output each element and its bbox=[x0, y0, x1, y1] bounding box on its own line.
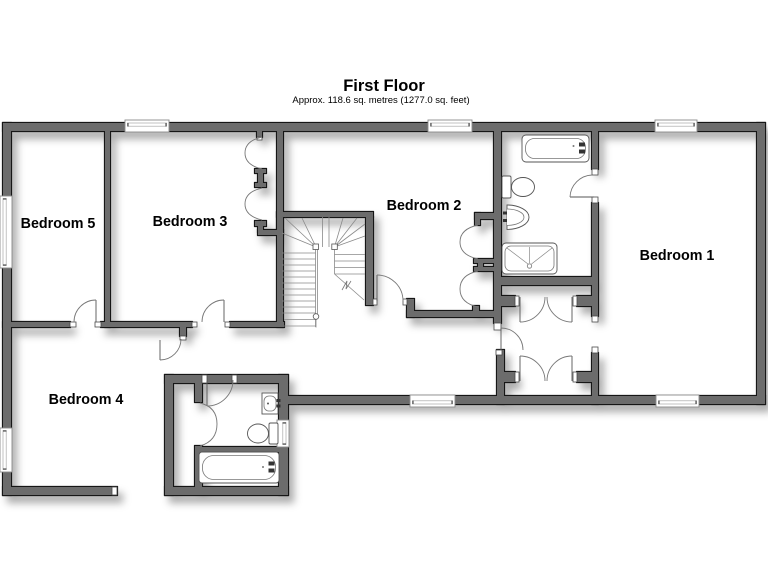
svg-text:Bedroom 2: Bedroom 2 bbox=[387, 198, 462, 214]
svg-text:First Floor: First Floor bbox=[343, 77, 425, 95]
svg-text:Bedroom 5: Bedroom 5 bbox=[21, 216, 96, 232]
svg-text:Approx. 118.6 sq. metres (1277: Approx. 118.6 sq. metres (1277.0 sq. fee… bbox=[292, 95, 469, 106]
svg-text:Bedroom 1: Bedroom 1 bbox=[640, 248, 715, 264]
svg-text:Bedroom 4: Bedroom 4 bbox=[49, 392, 124, 408]
svg-text:Bedroom 3: Bedroom 3 bbox=[153, 214, 228, 230]
